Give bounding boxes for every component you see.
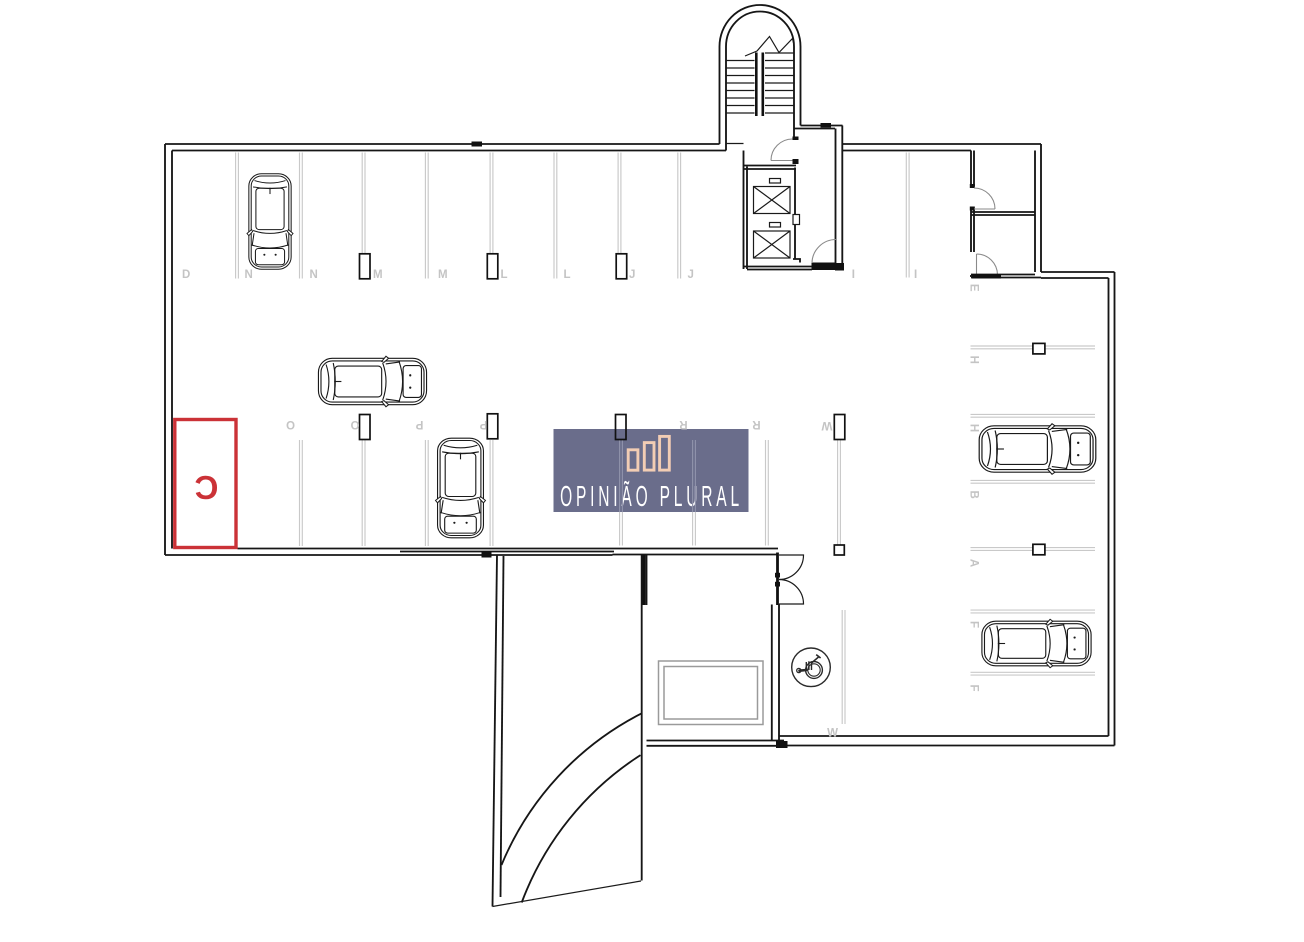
- svg-text:A: A: [968, 559, 980, 567]
- svg-text:W: W: [821, 419, 832, 431]
- svg-text:O: O: [286, 418, 295, 430]
- svg-text:J: J: [629, 269, 635, 281]
- svg-text:H: H: [968, 424, 980, 432]
- svg-text:OPINIÃO PLURAL: OPINIÃO PLURAL: [560, 480, 743, 512]
- svg-text:F: F: [968, 684, 980, 691]
- svg-text:E: E: [968, 284, 980, 292]
- svg-text:R: R: [752, 418, 761, 430]
- svg-text:L: L: [501, 269, 508, 281]
- svg-text:R: R: [679, 418, 688, 430]
- svg-text:I: I: [914, 269, 917, 281]
- svg-text:J: J: [688, 269, 694, 281]
- svg-text:I: I: [852, 269, 855, 281]
- svg-text:P: P: [415, 418, 423, 430]
- svg-text:W: W: [827, 728, 838, 740]
- svg-text:M: M: [438, 269, 448, 281]
- svg-text:L: L: [564, 269, 571, 281]
- svg-text:N: N: [245, 269, 253, 281]
- svg-text:M: M: [373, 269, 383, 281]
- svg-text:C: C: [195, 469, 219, 506]
- svg-text:D: D: [182, 269, 190, 281]
- svg-text:O: O: [350, 418, 359, 430]
- svg-text:H: H: [968, 356, 980, 364]
- svg-text:P: P: [479, 418, 487, 430]
- svg-text:N: N: [310, 269, 318, 281]
- svg-text:F: F: [968, 621, 980, 628]
- svg-text:B: B: [968, 490, 980, 498]
